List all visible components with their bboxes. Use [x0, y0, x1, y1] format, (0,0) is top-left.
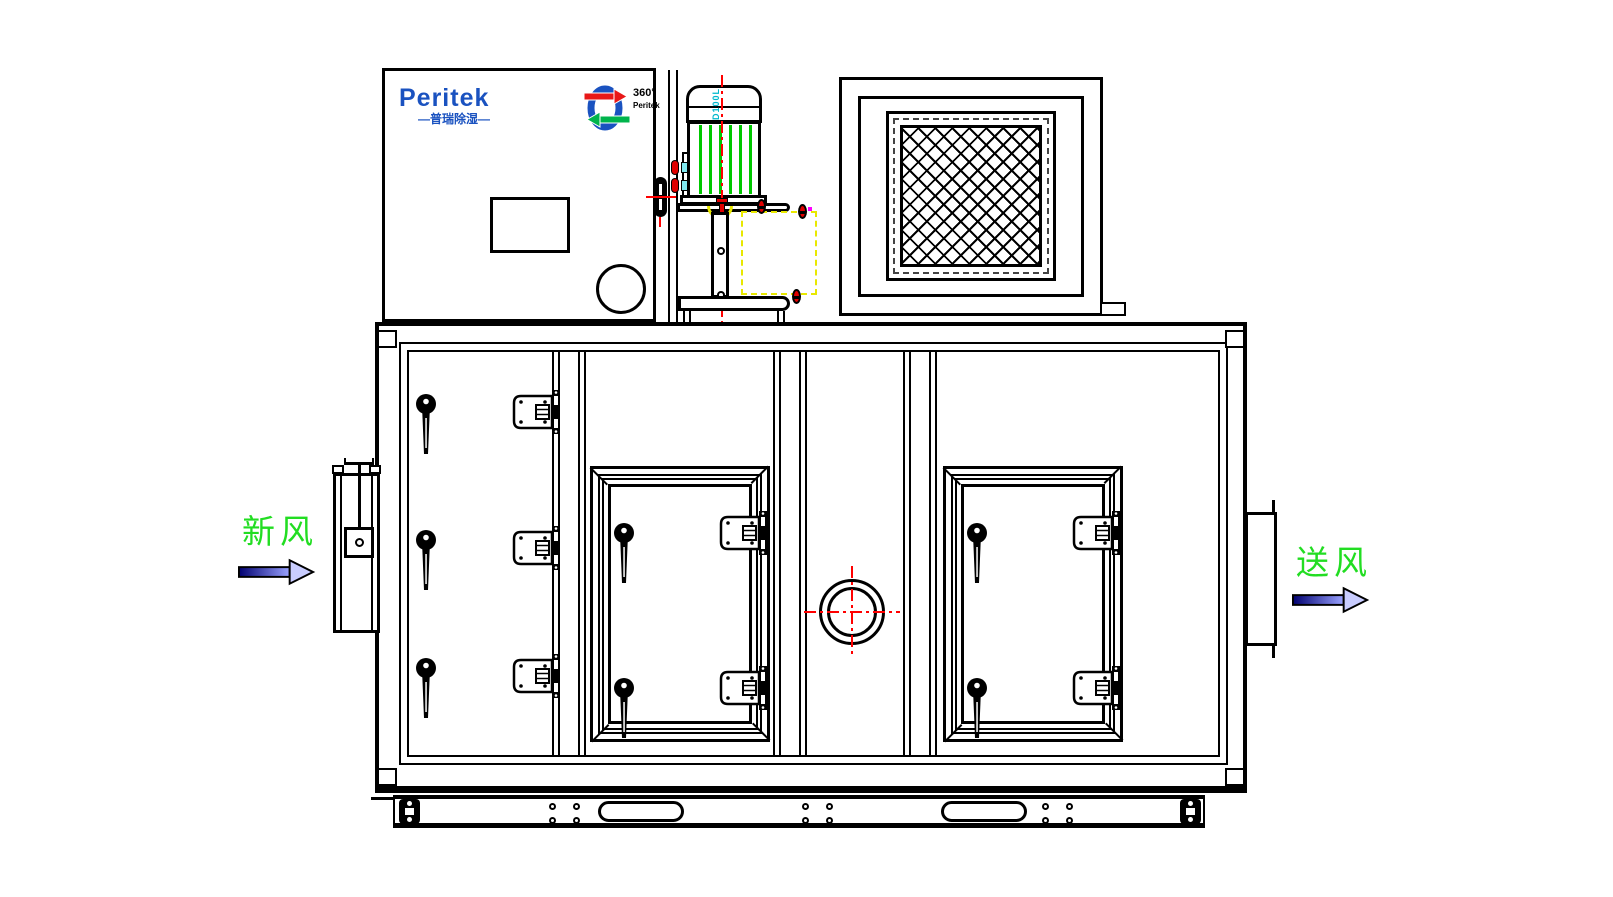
intake-duct-tab [332, 465, 344, 474]
door-latch [1071, 509, 1123, 557]
motor-cap-band [689, 106, 759, 108]
control-box [490, 197, 570, 253]
wheel-drive-outline-yellow [741, 211, 817, 295]
forklift-slot [598, 801, 684, 822]
lifting-notch [377, 330, 397, 348]
door-latch [718, 509, 770, 557]
wheel-bolt [757, 199, 766, 214]
forklift-slot [941, 801, 1027, 822]
bracket-leg [689, 311, 691, 322]
latch-centerline-v [659, 217, 661, 227]
peritek-logo-text: Peritek [399, 84, 489, 113]
grille-mesh [900, 125, 1042, 267]
lifting-notch [1225, 768, 1245, 786]
outlet-duct [1245, 512, 1277, 646]
bracket-leg [777, 311, 779, 322]
door-latch [511, 524, 563, 572]
door-latch [718, 664, 770, 712]
rotor-badge-degrees: 360° [633, 87, 656, 99]
door-latch [511, 388, 563, 436]
keyhole-handle [415, 529, 437, 593]
motor-frame-label: D100L [711, 86, 721, 120]
technical-drawing-canvas: Peritek —普瑞除湿— 360° Peritek D100L [0, 0, 1613, 897]
outlet-duct-tick [1272, 500, 1275, 512]
sight-glass-centerline-v [851, 566, 853, 658]
wheel-bolt [792, 289, 801, 304]
rotor-cassette-wall-line [676, 70, 678, 322]
latch-centerline-h [646, 196, 676, 198]
inspection-circle [596, 264, 646, 314]
bolt-hole-group [802, 803, 833, 824]
keyhole-handle [415, 393, 437, 457]
motor-base-bracket [678, 296, 790, 311]
lifting-notch [1225, 330, 1245, 348]
panel-divider-3 [903, 350, 911, 757]
panel-divider-3 [929, 350, 937, 757]
outlet-duct-tick [1272, 646, 1275, 658]
base-rail-left-tab [371, 797, 393, 800]
bolt-hole-group [549, 803, 580, 824]
bracket-leg [683, 311, 685, 322]
wheel-bolt [798, 204, 807, 219]
motor-mount-column [711, 212, 729, 298]
grille-corner-lug [1100, 302, 1126, 316]
column-bolt [717, 247, 725, 255]
cassette-latch-slot [659, 199, 662, 210]
supply-air-arrow [1292, 584, 1370, 616]
intake-duct-tab [369, 465, 381, 474]
rotor-wheel-logo-icon [584, 84, 630, 132]
bracket-leg [783, 311, 785, 322]
motor-fins [692, 125, 756, 194]
bolt-hole-group [1042, 803, 1073, 824]
rotor-badge-brand: Peritek [633, 101, 660, 110]
keyhole-handle [966, 522, 988, 586]
anchor-bracket [1180, 799, 1201, 824]
fresh-air-arrow [238, 556, 316, 588]
base-rail [393, 795, 1205, 828]
panel-divider-2 [799, 350, 807, 757]
cassette-latch-slot [659, 184, 662, 195]
anchor-bracket [399, 799, 420, 824]
keyhole-handle [966, 677, 988, 741]
lifting-notch [377, 768, 397, 786]
motor-bolt-red [671, 178, 679, 193]
panel-divider-2 [773, 350, 781, 757]
supply-air-label: 送风 [1296, 536, 1372, 584]
door-latch [1071, 664, 1123, 712]
damper-actuator-pin [355, 538, 364, 547]
fresh-air-label: 新风 [242, 505, 318, 553]
door-latch [511, 652, 563, 700]
damper-rod-tick [344, 458, 346, 465]
keyhole-handle [613, 522, 635, 586]
peritek-logo-subtext: —普瑞除湿— [398, 110, 510, 127]
damper-rod-stem [358, 465, 361, 527]
panel-divider-1 [578, 350, 586, 757]
motor-bolt-red [671, 160, 679, 175]
intake-duct-line [340, 476, 342, 630]
damper-rod-tick [372, 458, 374, 465]
magenta-marker [808, 207, 812, 211]
motor-cap [686, 85, 762, 123]
keyhole-handle [613, 677, 635, 741]
keyhole-handle [415, 657, 437, 721]
